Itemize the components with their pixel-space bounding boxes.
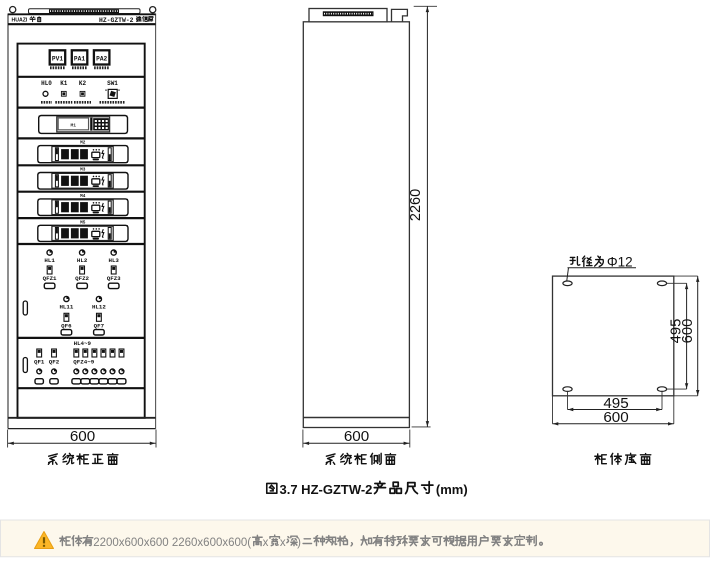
svg-text:K2: K2 [79, 80, 87, 87]
svg-text:(mm): (mm) [436, 482, 468, 497]
svg-text:QFZ2: QFZ2 [75, 275, 89, 282]
svg-text:QF2: QF2 [49, 359, 60, 366]
svg-text:QF1: QF1 [34, 359, 45, 366]
svg-text:HL12: HL12 [92, 303, 106, 310]
svg-text:600: 600 [70, 428, 95, 445]
svg-text:HL4~9: HL4~9 [74, 340, 92, 347]
svg-text:HL11: HL11 [59, 303, 73, 310]
svg-text:K1: K1 [60, 80, 68, 87]
svg-text:): ) [297, 537, 301, 549]
svg-text:QF6: QF6 [61, 322, 72, 329]
svg-text:QFZ4~9: QFZ4~9 [73, 359, 94, 366]
svg-text:": " [118, 89, 121, 95]
svg-text:PA2: PA2 [96, 55, 107, 62]
svg-text:x: x [280, 537, 286, 549]
svg-text:M3: M3 [80, 168, 86, 173]
svg-text:QF7: QF7 [94, 322, 105, 329]
svg-text:SW1: SW1 [107, 80, 118, 87]
svg-text:2260: 2260 [408, 189, 424, 221]
svg-text:600: 600 [603, 409, 628, 426]
svg-text:HUAZI: HUAZI [12, 18, 28, 24]
svg-text:QFZ1: QFZ1 [43, 275, 57, 282]
svg-text:600: 600 [680, 319, 696, 344]
svg-text:x: x [263, 537, 269, 549]
svg-text:HL2: HL2 [77, 257, 88, 264]
svg-text:HL0: HL0 [41, 80, 52, 87]
svg-text:HZ-GZTW-2: HZ-GZTW-2 [99, 17, 134, 24]
svg-text:PA1: PA1 [74, 55, 85, 62]
svg-text:600: 600 [344, 428, 369, 445]
svg-text:M4: M4 [80, 194, 86, 199]
svg-text:M2: M2 [80, 141, 86, 146]
svg-text:HL3: HL3 [108, 257, 119, 264]
svg-text:3.7 HZ-GZTW-2: 3.7 HZ-GZTW-2 [280, 482, 373, 497]
svg-text:": " [105, 89, 108, 95]
svg-text:Φ12: Φ12 [607, 254, 633, 269]
svg-text:PV1: PV1 [52, 55, 63, 62]
svg-text:M1: M1 [71, 122, 77, 128]
svg-text:M5: M5 [80, 220, 86, 225]
svg-text:2200x600x600 2260x600x600(: 2200x600x600 2260x600x600( [93, 537, 251, 549]
svg-text:HL1: HL1 [44, 257, 55, 264]
svg-text:QFZ3: QFZ3 [107, 275, 121, 282]
